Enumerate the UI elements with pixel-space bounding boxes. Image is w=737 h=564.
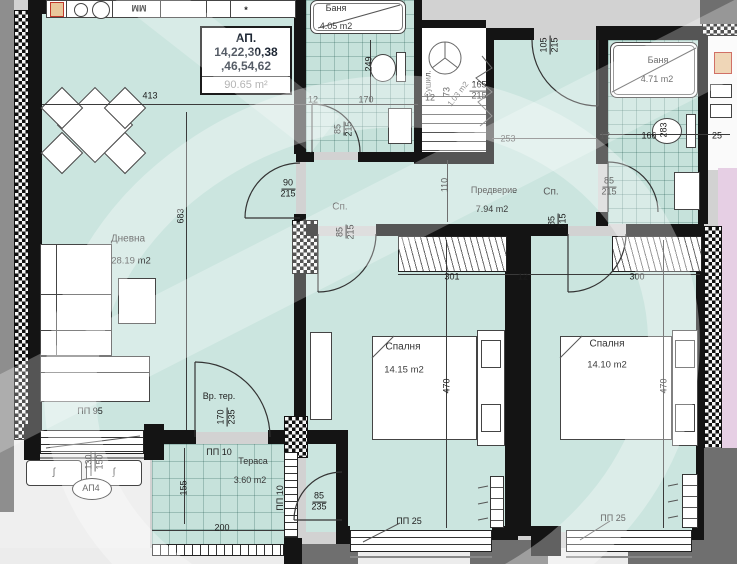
- plan-label: Тераса: [238, 456, 268, 466]
- plan-label: 4.71 m2: [641, 74, 674, 84]
- plan-label: ПП 10: [206, 447, 231, 457]
- plan-label: Предверие: [471, 185, 517, 195]
- plan-label: 1.03 m2: [446, 80, 471, 108]
- plan-label: ПП 25: [600, 513, 625, 523]
- plan-label: Сп.: [332, 202, 347, 213]
- plan-label: Сп.: [543, 187, 558, 198]
- plan-label: Вр. тер.: [203, 391, 236, 401]
- plan-label: Спалня: [590, 339, 625, 350]
- plan-label: Спалня: [386, 342, 421, 353]
- floor-plan: ʃ ʃ АП. 14,22,30,38 ,46,54,62 90.65 m²: [0, 0, 737, 564]
- labels-layer: Дневна28.19 m2Баня4.05 m2Предверие7.94 m…: [0, 0, 737, 564]
- plan-label: Дневна: [111, 234, 145, 245]
- plan-label: ПП 10: [275, 485, 285, 510]
- plan-label: АП4: [82, 483, 99, 493]
- plan-label: 7.94 m2: [476, 204, 509, 214]
- plan-label: ММ: [132, 3, 147, 13]
- plan-label: 3.60 m2: [234, 475, 267, 485]
- plan-label: 28.19 m2: [111, 256, 151, 267]
- plan-label: Сушил.: [424, 70, 433, 98]
- plan-label: Баня: [326, 3, 347, 13]
- plan-label: ПП 95: [77, 406, 102, 416]
- plan-label: 14.10 m2: [587, 360, 627, 371]
- plan-label: Баня: [648, 55, 669, 65]
- plan-label: ПП 25: [396, 516, 421, 526]
- plan-label: *: [244, 5, 248, 15]
- plan-label: 4.05 m2: [320, 21, 353, 31]
- plan-label: 14.15 m2: [384, 365, 424, 376]
